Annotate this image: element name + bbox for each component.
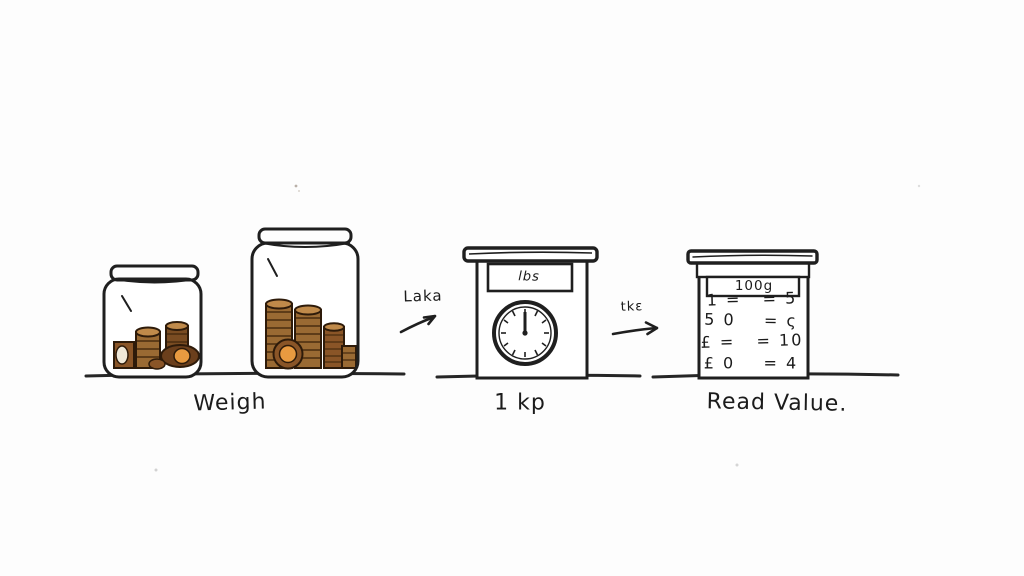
step-label-weigh: Weigh xyxy=(193,390,267,417)
scale-display-value: lbs xyxy=(518,269,540,284)
step-label-read-value: Read Value. xyxy=(706,389,847,416)
chart-row: 5 0 = ς xyxy=(704,310,798,331)
chart-row: £ 0 = 4 xyxy=(704,354,798,373)
scale-dial xyxy=(494,302,556,364)
large-coin-jar xyxy=(252,229,358,377)
step-label-scale: 1 kp xyxy=(494,391,546,416)
arrow1-label: Laka xyxy=(403,286,443,305)
sketch-canvas: Laka lbs tkε 100g 1 = = 5 5 0 = ς £ = = … xyxy=(0,0,1024,576)
small-coin-jar xyxy=(104,266,201,377)
chart-row: £ = = 10 xyxy=(700,330,803,352)
arrow2-label: tkε xyxy=(620,299,643,315)
arrow-right-icon xyxy=(613,323,657,335)
weighing-scale xyxy=(464,248,597,378)
chart-row: 1 = = 5 xyxy=(706,288,797,309)
arrow-right-icon xyxy=(401,316,435,332)
sketch-drawing xyxy=(0,0,1024,576)
